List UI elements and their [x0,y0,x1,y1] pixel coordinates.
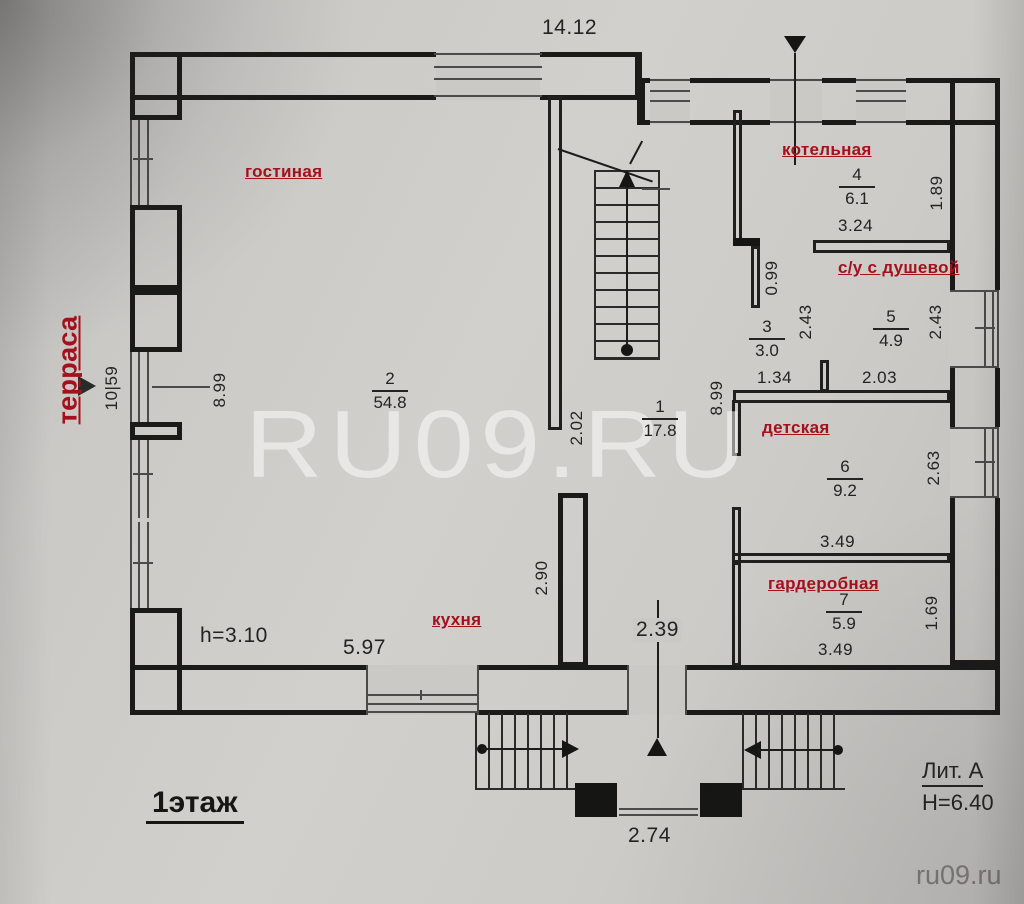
room-area: 9.2 [833,481,857,500]
porch-step-line [619,814,698,816]
room-number: 6 [840,457,849,476]
window-tick [133,473,153,475]
building-liter: Лит. А [922,758,983,787]
entrance-arrow-down [784,36,806,53]
window-line [650,79,690,81]
room-frac-living: 2 54.8 [363,370,417,412]
window-line [650,121,690,123]
porch-step-line [619,808,698,810]
floor-plan-scan: RU09.RU ru09.ru гостиная котельная с/у с… [0,0,1024,904]
wall-hall-right-bottom [732,562,741,666]
wall-wardrobe-top [732,553,950,563]
staircase-arrow-dot [621,344,633,356]
dim-hall-width-lower: 2.39 [633,618,682,642]
window-tick [133,158,153,160]
wall-top-left [130,52,640,100]
dim-porch-width: 2.74 [628,824,671,848]
entrance-door-gap [770,78,822,125]
window-line [984,290,986,368]
window-line [138,440,140,518]
room-frac-kids: 6 9.2 [818,458,872,500]
window-line [138,522,140,608]
room-frac-wardrobe: 7 5.9 [817,591,871,633]
window-line [856,79,906,81]
window-tick [975,327,995,329]
dim-bath-width: 2.03 [862,368,897,388]
window-top-line [434,95,542,97]
room-number: 1 [655,397,664,416]
wall-left-pier [130,422,182,440]
room-area: 17.8 [643,421,676,440]
staircase-break-tick [629,141,643,165]
wall-right [950,78,1000,665]
wall-kitchen-hall [558,493,588,667]
room-frac-corridor: 3 3.0 [740,318,794,360]
wall-bath-bottom [733,390,950,403]
wall-boiler-left [733,110,742,245]
wall-left-pier [130,205,182,290]
window-line [950,496,998,498]
room-number: 2 [385,369,394,388]
floor-title: 1этаж [146,786,244,824]
room-area: 5.9 [832,614,856,633]
window-top [436,52,540,100]
dim-corridor-opening: 1.34 [757,368,792,388]
porch-arrow-line [482,748,566,750]
room-label-kids: детская [762,418,830,438]
wall-left-pier [130,290,182,352]
window-kitchen [366,665,479,715]
window-line [992,290,994,368]
window-tick [420,690,422,700]
dim-wardrobe-width: 3.49 [818,640,853,660]
dim-top-width: 14.12 [542,16,597,40]
room-area: 4.9 [879,331,903,350]
room-label-living: гостиная [245,162,322,182]
porch-pillar [575,783,617,817]
room-number: 3 [762,317,771,336]
porch-arrow-line [758,749,838,751]
wall-outer-line [997,427,999,498]
window-line [856,121,906,123]
room-label-boiler: котельная [782,140,872,160]
wall-outer-line [366,711,479,713]
window-top-line [434,66,542,68]
dim-ceiling-height: h=3.10 [200,624,268,648]
window-line [856,90,906,92]
fraction-bar [826,611,862,613]
window-line [366,694,479,696]
window-line [650,90,690,92]
wall-boiler-jog [733,238,760,246]
room-frac-boiler: 4 6.1 [830,166,884,208]
wall-bath-jamb [820,360,829,392]
room-frac-bath: 5 4.9 [864,308,918,350]
wall-boiler-bottom [813,240,950,253]
window-top-line [434,78,542,80]
wall-left-pier [130,608,182,715]
window-line [147,440,149,518]
window-line [138,120,140,205]
door-line [770,79,822,81]
fraction-bar [749,338,785,340]
window-line [366,703,479,705]
porch-arrow-dot [833,745,843,755]
window-line [950,366,998,368]
window-line [856,100,906,102]
window-line [950,427,998,429]
room-label-kitchen: кухня [432,610,481,630]
watermark-small: ru09.ru [916,860,1002,891]
room-label-bath: с/у с душевой [838,258,960,278]
wall-living-right [548,96,562,430]
building-height: H=6.40 [922,790,994,816]
staircase-tick [642,188,670,190]
wall-bottom [130,665,1000,715]
fraction-bar [873,328,909,330]
window-line [950,290,998,292]
dim-kitchen-window: 5.97 [343,636,386,660]
room-number: 7 [839,590,848,609]
dim-line-living-depth [152,386,210,388]
porch-stairs-left [475,713,575,790]
staircase-arrow-up [619,170,635,187]
porch-arrow-right [562,740,579,758]
window-tick [133,562,153,564]
wall-outer-line [997,290,999,368]
room-frac-hall: 1 17.8 [633,398,687,440]
fraction-bar [827,478,863,480]
wall-boiler-stub [751,246,760,308]
window-line [147,352,149,422]
room-area: 3.0 [755,341,779,360]
room-number: 4 [852,165,861,184]
staircase-arrow-line [626,184,628,350]
fraction-bar [372,390,408,392]
fraction-bar [839,186,875,188]
dim-boiler-width: 3.24 [838,216,873,236]
room-number: 5 [886,307,895,326]
door-line [770,121,822,123]
door-line [627,665,629,715]
window-top-line [434,53,542,55]
window-line [147,120,149,205]
window-line [650,100,690,102]
porch-arrow-up [647,738,667,756]
room-area: 6.1 [845,189,869,208]
window-line [477,665,479,715]
dim-kids-width: 3.49 [820,532,855,552]
porch-pillar [700,783,742,817]
room-area: 54.8 [373,393,406,412]
wall-left-pier [130,52,182,120]
door-line [685,665,687,715]
window-line [138,352,140,422]
window-line [366,665,368,715]
window-line [147,522,149,608]
window-tick [975,461,995,463]
fraction-bar [642,418,678,420]
